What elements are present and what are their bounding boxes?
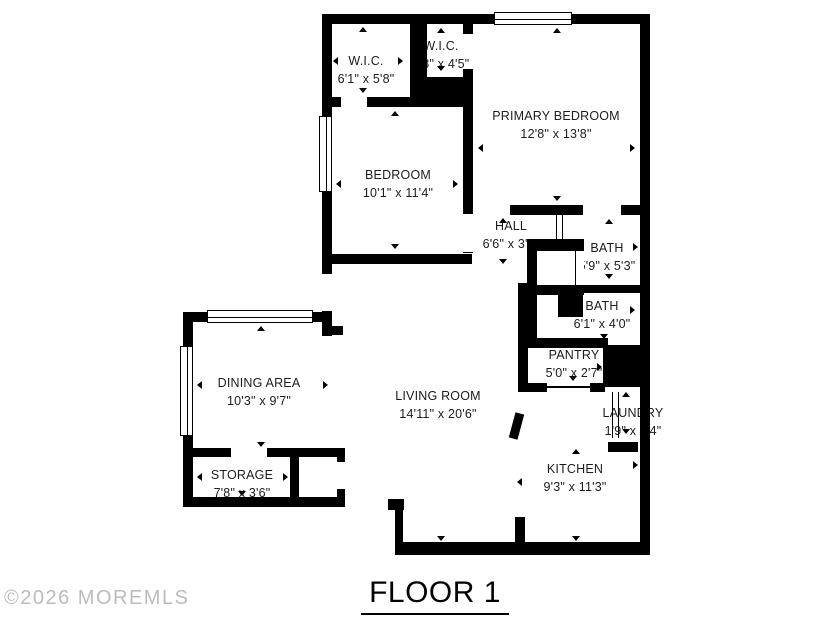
window bbox=[494, 12, 572, 25]
wall bbox=[322, 14, 650, 24]
room-label-bedroom: BEDROOM 10'1" x 11'4" bbox=[363, 166, 433, 202]
door-opening bbox=[367, 97, 368, 107]
floor-title: FLOOR 1 bbox=[361, 576, 509, 615]
room-name: STORAGE bbox=[211, 466, 273, 484]
room-label-wic-1: W.I.C. 6'1" x 5'8" bbox=[338, 52, 395, 88]
dimension-marker bbox=[630, 306, 635, 314]
window bbox=[207, 310, 313, 323]
wall bbox=[573, 285, 650, 293]
dimension-marker bbox=[622, 429, 630, 434]
dimension-marker bbox=[605, 274, 613, 279]
wall bbox=[515, 517, 525, 544]
door-opening bbox=[337, 461, 345, 462]
wall bbox=[510, 205, 582, 215]
wall bbox=[518, 383, 547, 392]
wall bbox=[388, 499, 404, 510]
dimension-marker bbox=[517, 478, 522, 486]
room-name: LIVING ROOM bbox=[395, 387, 481, 405]
wall bbox=[608, 442, 638, 452]
door-opening bbox=[267, 448, 268, 457]
dimension-marker bbox=[398, 57, 403, 65]
wall bbox=[410, 14, 427, 97]
door-opening bbox=[322, 311, 332, 312]
door-opening bbox=[612, 392, 613, 438]
dimension-marker bbox=[566, 306, 571, 314]
dimension-marker bbox=[437, 28, 445, 33]
dimension-marker bbox=[553, 196, 561, 201]
room-dimensions: 5'9" x 5'3" bbox=[579, 257, 636, 275]
dimension-marker bbox=[600, 334, 608, 339]
dimension-marker bbox=[283, 473, 288, 481]
door-opening bbox=[463, 252, 473, 253]
dimension-marker bbox=[597, 363, 602, 371]
dimension-marker bbox=[437, 66, 445, 71]
window bbox=[319, 116, 332, 192]
wall bbox=[427, 77, 467, 87]
wall bbox=[322, 264, 332, 273]
door-opening bbox=[337, 489, 345, 490]
room-dimensions: 10'1" x 11'4" bbox=[363, 184, 433, 202]
room-name: PANTRY bbox=[549, 346, 600, 364]
dimension-marker bbox=[478, 144, 483, 152]
closet-interior bbox=[537, 251, 584, 285]
room-label-primary-bedroom: PRIMARY BEDROOM 12'8" x 13'8" bbox=[492, 107, 620, 143]
wall bbox=[622, 205, 650, 215]
room-label-kitchen: KITCHEN 9'3" x 11'3" bbox=[543, 460, 606, 496]
door-opening bbox=[621, 205, 622, 215]
room-name: DINING AREA bbox=[218, 374, 301, 392]
dimension-marker bbox=[572, 536, 580, 541]
room-dimensions: 1'9" x 4'4" bbox=[605, 422, 662, 440]
wall bbox=[290, 448, 299, 507]
floor-plan: W.I.C. 6'1" x 5'8" W.I.C. 3'8" x 4'5" PR… bbox=[0, 0, 840, 630]
dimension-marker bbox=[197, 473, 202, 481]
wall bbox=[395, 510, 403, 544]
wall bbox=[603, 345, 650, 387]
dimension-marker bbox=[572, 449, 580, 454]
room-dimensions: 12'8" x 13'8" bbox=[520, 125, 591, 143]
door-opening bbox=[547, 386, 591, 388]
dimension-marker bbox=[633, 461, 638, 469]
dimension-marker bbox=[522, 363, 527, 371]
room-name: W.I.C. bbox=[423, 37, 458, 55]
door-opening bbox=[340, 97, 341, 107]
wall bbox=[322, 254, 472, 264]
dimension-marker bbox=[359, 27, 367, 32]
dimension-marker bbox=[453, 180, 458, 188]
dimension-marker bbox=[630, 144, 635, 152]
wall bbox=[330, 326, 343, 335]
window bbox=[180, 346, 193, 436]
dimension-marker bbox=[605, 219, 613, 224]
dimension-marker bbox=[437, 536, 445, 541]
watermark: ©2026 MOREMLS bbox=[4, 587, 189, 610]
door-opening bbox=[322, 273, 332, 274]
dimension-marker bbox=[323, 381, 328, 389]
wall bbox=[518, 338, 608, 348]
room-name: W.I.C. bbox=[348, 52, 383, 70]
dimension-marker bbox=[622, 392, 630, 397]
wall bbox=[183, 432, 193, 507]
room-name: BATH bbox=[585, 297, 618, 315]
dimension-marker bbox=[569, 342, 577, 347]
wall bbox=[509, 412, 524, 439]
wall bbox=[268, 448, 345, 457]
dimension-marker bbox=[499, 218, 507, 223]
door-opening bbox=[618, 392, 619, 438]
room-label-dining-area: DINING AREA 10'3" x 9'7" bbox=[218, 374, 301, 410]
dimension-marker bbox=[257, 326, 265, 331]
room-name: BEDROOM bbox=[365, 166, 431, 184]
dimension-marker bbox=[391, 111, 399, 116]
wall bbox=[337, 490, 345, 507]
wall bbox=[183, 497, 345, 507]
room-dimensions: 10'3" x 9'7" bbox=[227, 392, 291, 410]
wall bbox=[463, 70, 473, 213]
door-opening bbox=[562, 215, 563, 239]
dimension-marker bbox=[197, 381, 202, 389]
dimension-marker bbox=[569, 376, 577, 381]
room-label-living-room: LIVING ROOM 14'11" x 20'6" bbox=[395, 387, 481, 423]
door-opening bbox=[463, 69, 473, 70]
dimension-marker bbox=[391, 244, 399, 249]
dimension-marker bbox=[238, 491, 246, 496]
door-opening bbox=[575, 251, 576, 285]
door-opening bbox=[463, 33, 473, 34]
wall bbox=[368, 97, 410, 107]
room-label-bath-1: BATH 5'9" x 5'3" bbox=[579, 239, 636, 275]
room-dimensions: 6'1" x 4'0" bbox=[574, 315, 631, 333]
wall bbox=[410, 87, 468, 107]
room-name: KITCHEN bbox=[547, 460, 603, 478]
door-opening bbox=[230, 448, 231, 457]
wall bbox=[337, 448, 345, 462]
door-opening bbox=[556, 215, 557, 239]
room-dimensions: 9'3" x 11'3" bbox=[543, 478, 606, 496]
wall bbox=[183, 448, 230, 457]
room-name: BATH bbox=[590, 239, 623, 257]
wall bbox=[463, 14, 473, 33]
wall bbox=[322, 97, 340, 107]
dimension-marker bbox=[333, 57, 338, 65]
door-opening bbox=[463, 213, 473, 214]
wall bbox=[322, 190, 332, 264]
door-opening bbox=[582, 205, 583, 215]
dimension-marker bbox=[359, 88, 367, 93]
dimension-marker bbox=[499, 259, 507, 264]
room-dimensions: 14'11" x 20'6" bbox=[399, 405, 476, 423]
dimension-marker bbox=[336, 180, 341, 188]
dimension-marker bbox=[257, 442, 265, 447]
dimension-marker bbox=[553, 28, 561, 33]
dimension-marker bbox=[633, 243, 638, 251]
room-name: PRIMARY BEDROOM bbox=[492, 107, 620, 125]
room-dimensions: 6'1" x 5'8" bbox=[338, 70, 395, 88]
